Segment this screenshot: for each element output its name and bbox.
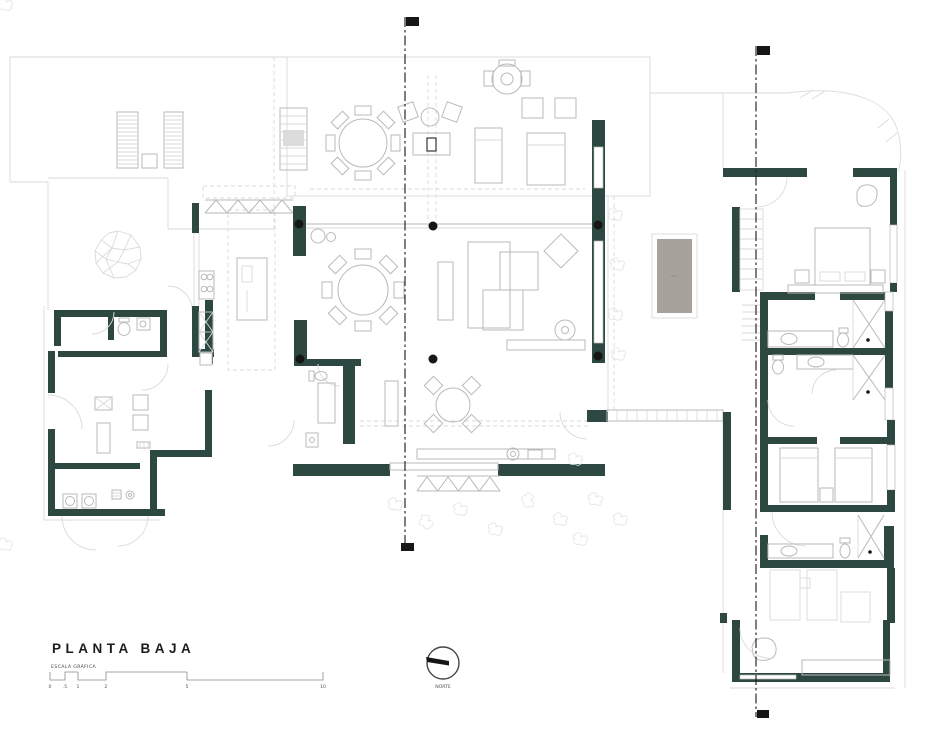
pergola-truss-icon [417,476,500,491]
nightstand-icon [820,488,833,502]
sink-icon [781,334,797,345]
sink-icon [808,357,824,367]
toilet-icon [838,333,849,347]
entry-truss-icon [203,186,295,213]
section-marker-icon [757,46,770,55]
scale-tick: 1 [77,684,80,690]
toilet-icon [309,371,314,381]
bedroom-wing [720,168,897,682]
console-icon [507,340,585,350]
fire-pit-icon [484,60,530,94]
section-marker-icon [757,710,769,718]
family-table [424,376,480,432]
section-marker-icon [406,17,419,26]
toilet-icon [773,360,784,374]
exterior-stair-icon [280,108,307,170]
site-reference [10,57,905,688]
toilet-icon [840,544,850,558]
vanity-icon [768,544,833,558]
page-title: PLANTA BAJA [52,641,195,656]
shower-icon [858,515,884,558]
powder-room-fixtures [118,318,150,336]
terrace-round-table [326,106,400,180]
sink-icon [781,546,797,556]
toilet-icon [118,323,130,336]
upper-terrace-furniture [326,60,576,185]
bathroom-3 [768,515,884,558]
graphic-scale-bar: 0 .5 1 2 5 10 [49,672,326,690]
shower-icon [853,300,885,348]
scale-tick: .5 [63,684,67,690]
cooktop-icon [199,271,214,299]
floor-plan-drawing: NORTE PLANTA BAJA ESCALA GRÁFICA 0 .5 1 … [0,0,950,734]
pool-area [608,196,697,412]
terrace-loungers [475,98,576,185]
bedroom-2 [772,448,872,546]
shower-icon [853,355,885,400]
bed-icon [780,448,818,502]
bedroom-1 [740,177,885,293]
sofa-group [438,234,585,350]
vanity-icon [797,355,853,369]
scale-tick: 2 [105,684,108,690]
floor-plan-sheet: NORTE PLANTA BAJA ESCALA GRÁFICA 0 .5 1 … [0,0,950,734]
service-wing [48,286,213,550]
living-east-wall [592,120,605,363]
kitchen-island-icon [237,258,267,320]
study-furniture [95,395,150,453]
scale-label: ESCALA GRÁFICA [51,663,97,670]
cabinet-icon [318,383,335,423]
living-dining [306,120,605,363]
sofa [468,242,510,328]
north-label: NORTE [435,684,451,690]
section-marker-icon [401,543,414,551]
column-dots [295,220,603,364]
sink-icon [137,318,150,330]
north-needle-icon [426,657,449,666]
north-arrow: NORTE [426,647,459,690]
laundry-fixtures [63,490,134,508]
service-wing-walls [48,300,213,516]
nightstand-icon [871,270,885,283]
desk-icon [97,423,110,453]
terrace-lounge-chairs [398,102,463,155]
sink-icon [306,433,318,447]
kitchen [192,186,306,365]
title-block: PLANTA BAJA ESCALA GRÁFICA 0 .5 1 2 5 10 [49,641,326,690]
walkway [607,410,723,421]
low-ledge [390,463,498,470]
bench-icon [802,660,890,675]
bedroom-3 [740,570,890,675]
armchair-icon [544,234,578,268]
family-room-walls [293,320,608,476]
lounge-chair-icon [857,185,877,207]
stairs-icon [742,305,760,340]
vanity-icon [768,331,833,347]
powder-room-2-fixtures [306,371,327,447]
bathroom-2 [768,355,885,426]
nightstand-icon [795,270,809,283]
louver-deck-icon [117,112,183,168]
scale-tick: 10 [320,684,326,690]
bed-icon [788,228,885,293]
courtyard [95,108,307,278]
scale-tick: 0 [49,684,52,690]
floor-lamp-icon [555,320,575,340]
shelf-icon [385,381,398,426]
bed-icon [835,448,872,502]
family-room [268,320,608,476]
dining-table [322,249,404,331]
scale-tick: 5 [186,684,189,690]
toilet-icon [119,318,129,322]
tree-icon [95,231,141,278]
stairs-icon [740,209,763,290]
media-console-icon [417,448,555,460]
